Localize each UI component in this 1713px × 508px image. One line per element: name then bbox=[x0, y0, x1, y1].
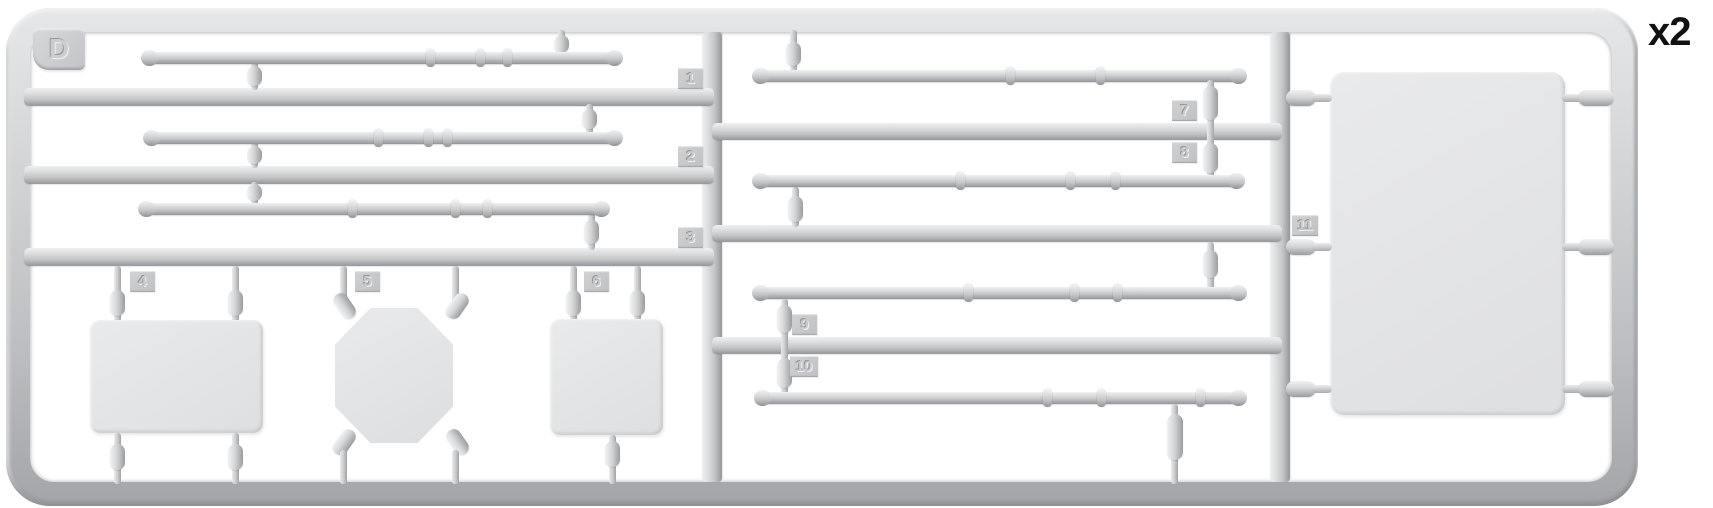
molding-gate-bulge bbox=[110, 444, 125, 470]
octagon-part-5 bbox=[335, 308, 453, 443]
rod-ring bbox=[348, 200, 357, 218]
rod-cap bbox=[141, 50, 158, 66]
part-tag-6: 6 bbox=[584, 271, 609, 292]
rod-cap bbox=[752, 285, 769, 301]
crossbar bbox=[24, 88, 714, 106]
molding-gate bbox=[1312, 243, 1332, 251]
part-tag-10: 10 bbox=[790, 356, 818, 377]
molding-gate-bulge bbox=[228, 444, 243, 470]
quantity-label: x2 bbox=[1648, 12, 1691, 52]
rod-ring bbox=[964, 284, 973, 302]
rod-part-1 bbox=[145, 52, 620, 64]
molding-gate bbox=[340, 450, 347, 484]
molding-gate-bulge bbox=[1578, 239, 1614, 255]
rod-cap bbox=[606, 130, 623, 146]
rod-ring bbox=[956, 172, 965, 190]
molding-gate-bulge bbox=[1203, 250, 1218, 278]
part-number: 4 bbox=[138, 273, 146, 290]
rod-ring bbox=[1066, 172, 1075, 190]
rod-cap bbox=[754, 390, 771, 406]
part-tag-11: 11 bbox=[1292, 215, 1318, 236]
molding-gate-bulge bbox=[630, 290, 645, 316]
rod-ring bbox=[503, 49, 512, 67]
molding-gate-bulge bbox=[777, 305, 792, 333]
part-tag-8: 8 bbox=[1172, 142, 1197, 163]
crossbar bbox=[712, 225, 1282, 242]
part-number: 5 bbox=[363, 273, 371, 290]
molding-gate-bulge bbox=[582, 109, 597, 129]
rod-ring bbox=[374, 129, 383, 147]
part-number: 8 bbox=[1180, 144, 1188, 161]
large-panel-part-11 bbox=[1330, 72, 1565, 415]
rod-ring bbox=[483, 200, 492, 218]
molding-gate-bulge bbox=[584, 220, 599, 244]
molding-gate-bulge bbox=[1203, 86, 1218, 120]
molding-gate-bulge bbox=[228, 290, 243, 316]
rod-cap bbox=[752, 68, 769, 84]
sprue-letter-tab: D bbox=[33, 28, 85, 70]
part-number: 10 bbox=[796, 358, 813, 375]
molding-gate-bulge bbox=[110, 290, 125, 316]
rod-ring bbox=[451, 200, 460, 218]
rod-ring bbox=[426, 49, 435, 67]
part-tag-7: 7 bbox=[1172, 100, 1197, 121]
rod-part-10 bbox=[758, 392, 1246, 404]
rod-ring bbox=[1196, 389, 1205, 407]
crossbar bbox=[712, 337, 1282, 354]
part-number: 7 bbox=[1180, 102, 1188, 119]
part-number: 11 bbox=[1297, 217, 1313, 234]
rod-cap bbox=[138, 201, 155, 217]
molding-gate-bulge bbox=[247, 66, 262, 86]
rod-part-3 bbox=[142, 203, 607, 215]
rod-ring bbox=[1043, 389, 1052, 407]
rod-part-8 bbox=[756, 175, 1244, 187]
molding-gate-bulge bbox=[605, 441, 620, 467]
rod-ring bbox=[1111, 172, 1120, 190]
rod-cap bbox=[606, 50, 623, 66]
rod-cap bbox=[1230, 68, 1247, 84]
molding-gate-bulge bbox=[786, 42, 801, 66]
molding-gate bbox=[452, 450, 459, 484]
rod-ring bbox=[1070, 284, 1079, 302]
crossbar bbox=[712, 123, 1282, 140]
panel-part-6 bbox=[550, 319, 663, 435]
part-tag-4: 4 bbox=[130, 271, 155, 292]
rod-part-2 bbox=[147, 132, 620, 144]
molding-gate-bulge bbox=[788, 196, 803, 222]
rod-ring bbox=[1113, 284, 1122, 302]
part-tag-3: 3 bbox=[678, 227, 703, 248]
part-number: 2 bbox=[686, 148, 694, 165]
molding-gate-bulge bbox=[1203, 143, 1218, 173]
part-tag-1: 1 bbox=[678, 68, 703, 89]
crossbar bbox=[24, 248, 714, 266]
rod-ring bbox=[1006, 67, 1015, 85]
molding-gate-bulge bbox=[1578, 381, 1614, 397]
rod-cap bbox=[1228, 173, 1245, 189]
part-tag-9: 9 bbox=[792, 314, 817, 335]
part-number: 1 bbox=[686, 70, 694, 87]
rod-part-7 bbox=[756, 70, 1246, 82]
sprue-photo: D x2 bbox=[0, 0, 1713, 508]
molding-gate-bulge bbox=[247, 184, 262, 201]
rod-ring bbox=[443, 129, 452, 147]
molding-gate bbox=[1312, 385, 1332, 393]
rod-part-9 bbox=[756, 287, 1246, 299]
molding-gate-bulge bbox=[554, 35, 569, 53]
rod-ring bbox=[1097, 389, 1106, 407]
part-tag-2: 2 bbox=[678, 146, 703, 167]
crossbar bbox=[24, 166, 714, 184]
molding-gate-bulge bbox=[1578, 90, 1614, 106]
part-tag-5: 5 bbox=[355, 271, 380, 292]
part-number: 6 bbox=[592, 273, 600, 290]
rod-ring bbox=[476, 49, 485, 67]
molding-gate bbox=[1312, 94, 1332, 102]
rod-ring bbox=[1096, 67, 1105, 85]
panel-part-4 bbox=[90, 320, 263, 433]
rod-cap bbox=[593, 201, 610, 217]
sprue-letter: D bbox=[49, 33, 69, 65]
molding-gate-bulge bbox=[566, 290, 581, 316]
rod-cap bbox=[143, 130, 160, 146]
rod-cap bbox=[1230, 390, 1247, 406]
molding-gate-bulge bbox=[247, 146, 262, 164]
molding-gate-bulge bbox=[1167, 414, 1183, 460]
part-number: 3 bbox=[686, 229, 694, 246]
rod-ring bbox=[424, 129, 433, 147]
rod-cap bbox=[752, 173, 769, 189]
rod-cap bbox=[1230, 285, 1247, 301]
part-number: 9 bbox=[800, 316, 808, 333]
